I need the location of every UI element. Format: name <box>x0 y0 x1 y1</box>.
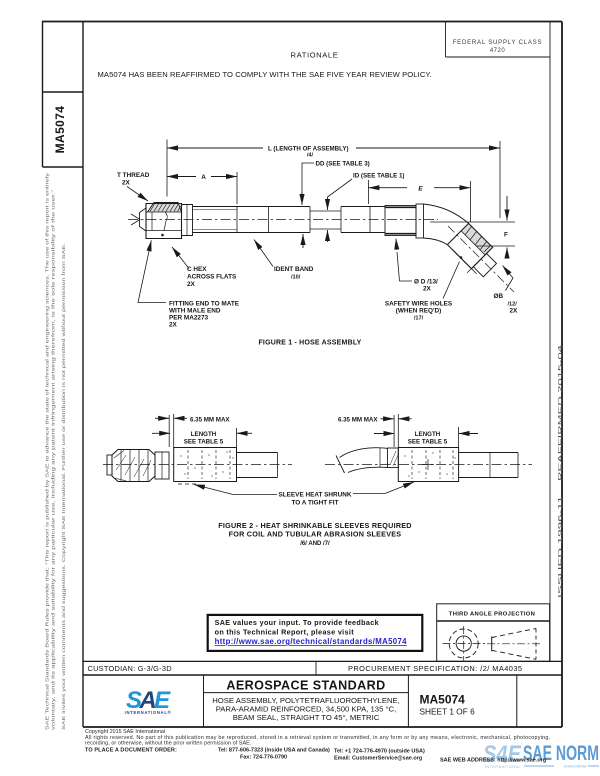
svg-text:RATIONALE: RATIONALE <box>291 51 339 60</box>
svg-text:FEDERAL SUPPLY CLASS: FEDERAL SUPPLY CLASS <box>453 40 543 46</box>
svg-text:T THREAD: T THREAD <box>117 172 150 179</box>
svg-text:CUSTODIAN: G-3/G-3D: CUSTODIAN: G-3/G-3D <box>88 664 172 673</box>
svg-text:recording, or otherwise, witho: recording, or otherwise, without the pri… <box>85 740 251 746</box>
svg-text:6.35 MM MAX: 6.35 MM MAX <box>190 416 230 423</box>
svg-text:L (LENGTH OF ASSEMBLY): L (LENGTH OF ASSEMBLY) <box>268 146 349 153</box>
svg-text:BEAM SEAL, STRAIGHT TO 45°, ME: BEAM SEAL, STRAIGHT TO 45°, METRIC <box>233 713 380 722</box>
svg-text:voluntary, and its applicabili: voluntary, and its applicability and sui… <box>51 189 56 730</box>
svg-text:Tel: 877-606-7323 (inside U: Tel: 877-606-7323 (inside USA and Canada… <box>218 748 330 754</box>
svg-text:PER MA2273: PER MA2273 <box>169 315 209 322</box>
svg-text:Tel: +1 724-776-4970 (outsi: Tel: +1 724-776-4970 (outside USA) <box>334 749 425 755</box>
svg-text:SAE WEB ADDRESS: http://www.s: SAE WEB ADDRESS: http://www.sae.org <box>440 758 546 764</box>
svg-text:INTERNATIONAL: INTERNATIONAL <box>485 765 521 769</box>
svg-text:AEROSPACE STANDARD: AEROSPACE STANDARD <box>226 679 385 693</box>
svg-text:ACROSS FLATS: ACROSS FLATS <box>187 274 237 281</box>
svg-text:http://www.sae.org/technical/s: http://www.sae.org/technical/standards/M… <box>215 637 408 646</box>
svg-text:/4/: /4/ <box>307 153 314 159</box>
svg-text:E: E <box>418 186 423 193</box>
svg-text:LENGTH: LENGTH <box>415 431 441 438</box>
svg-text:4720: 4720 <box>490 48 506 54</box>
svg-text:2X: 2X <box>510 308 519 315</box>
svg-text:FITTING END TO MATE: FITTING END TO MATE <box>169 301 240 308</box>
svg-text:C HEX: C HEX <box>187 266 207 273</box>
svg-text:A: A <box>201 174 206 181</box>
svg-text:Fax: 724-776-0790: Fax: 724-776-0790 <box>240 755 287 761</box>
svg-text:MA5074: MA5074 <box>53 106 67 154</box>
svg-text:FOR COIL AND TUBULAR ABRASION: FOR COIL AND TUBULAR ABRASION SLEEVES <box>229 530 402 539</box>
svg-text:LENGTH: LENGTH <box>191 431 217 438</box>
svg-text:SHEET 1 OF 6: SHEET 1 OF 6 <box>420 707 476 717</box>
svg-text:F: F <box>504 232 508 239</box>
svg-text:ØB: ØB <box>494 293 504 300</box>
svg-text:2X: 2X <box>187 281 196 288</box>
svg-text:FIGURE 1 - HOSE ASSEMBLY: FIGURE 1 - HOSE ASSEMBLY <box>258 340 361 347</box>
svg-text:Ø D /13/: Ø D /13/ <box>414 279 438 286</box>
svg-text:THIRD ANGLE PROJECTION: THIRD ANGLE PROJECTION <box>449 612 535 618</box>
svg-text:Email: CustomerService@sae.org: Email: CustomerService@sae.org <box>334 756 422 762</box>
svg-text:IDENT BAND: IDENT BAND <box>274 266 314 273</box>
svg-text:SAE invites your written comme: SAE invites your written comments and su… <box>61 243 66 730</box>
svg-text:TO PLACE A DOCUMENT ORDER:: TO PLACE A DOCUMENT ORDER: <box>85 748 177 754</box>
svg-text:on this Technical Report, plea: on this Technical Report, please visit <box>215 628 355 637</box>
svg-text:(WHEN REQ'D): (WHEN REQ'D) <box>396 308 442 315</box>
svg-text:REAFFIRMED 2015-04: REAFFIRMED 2015-04 <box>558 343 564 481</box>
svg-text:DD (SEE TABLE 3): DD (SEE TABLE 3) <box>316 161 370 168</box>
svg-text:INTERNATIONAL®: INTERNATIONAL® <box>125 710 172 715</box>
svg-text:MA5074 HAS BEEN REAFFIRMED TO: MA5074 HAS BEEN REAFFIRMED TO COMPLY WIT… <box>98 70 432 79</box>
svg-text:SLEEVE HEAT SHRUNK: SLEEVE HEAT SHRUNK <box>278 492 351 499</box>
svg-text:WITH MALE END: WITH MALE END <box>169 308 221 315</box>
svg-text:S4E: S4E <box>483 741 522 768</box>
svg-text:ЗНАКОМИМ: ЗНАКОМИМ <box>564 765 587 769</box>
svg-text:SEE TABLE 5: SEE TABLE 5 <box>184 438 224 445</box>
svg-text:2X: 2X <box>423 286 432 293</box>
svg-text:2X: 2X <box>169 322 178 329</box>
svg-text:/10/: /10/ <box>291 275 301 281</box>
svg-text:ID (SEE TABLE 1): ID (SEE TABLE 1) <box>353 173 404 180</box>
svg-text:SAE values your input. To prov: SAE values your input. To provide feedba… <box>215 618 379 627</box>
svg-text:ISSUED 1996-11: ISSUED 1996-11 <box>558 496 564 598</box>
svg-text:2X: 2X <box>122 180 131 187</box>
svg-text:/17/: /17/ <box>414 316 424 322</box>
svg-text:PROCUREMENT SPECIFICATION: /2/: PROCUREMENT SPECIFICATION: /2/ MA4035 <box>348 664 523 673</box>
svg-text:TO A TIGHT FIT: TO A TIGHT FIT <box>292 500 339 507</box>
svg-text:6.35 MM MAX: 6.35 MM MAX <box>338 417 378 424</box>
svg-text:SEE TABLE 5: SEE TABLE 5 <box>408 439 448 446</box>
svg-text:SAE Technical Standards Board: SAE Technical Standards Board Rules prov… <box>45 172 50 730</box>
svg-text:MA5074: MA5074 <box>420 693 466 707</box>
svg-text:SAFETY WIRE HOLES: SAFETY WIRE HOLES <box>385 301 453 308</box>
svg-text:/6/ AND /7/: /6/ AND /7/ <box>300 541 330 547</box>
